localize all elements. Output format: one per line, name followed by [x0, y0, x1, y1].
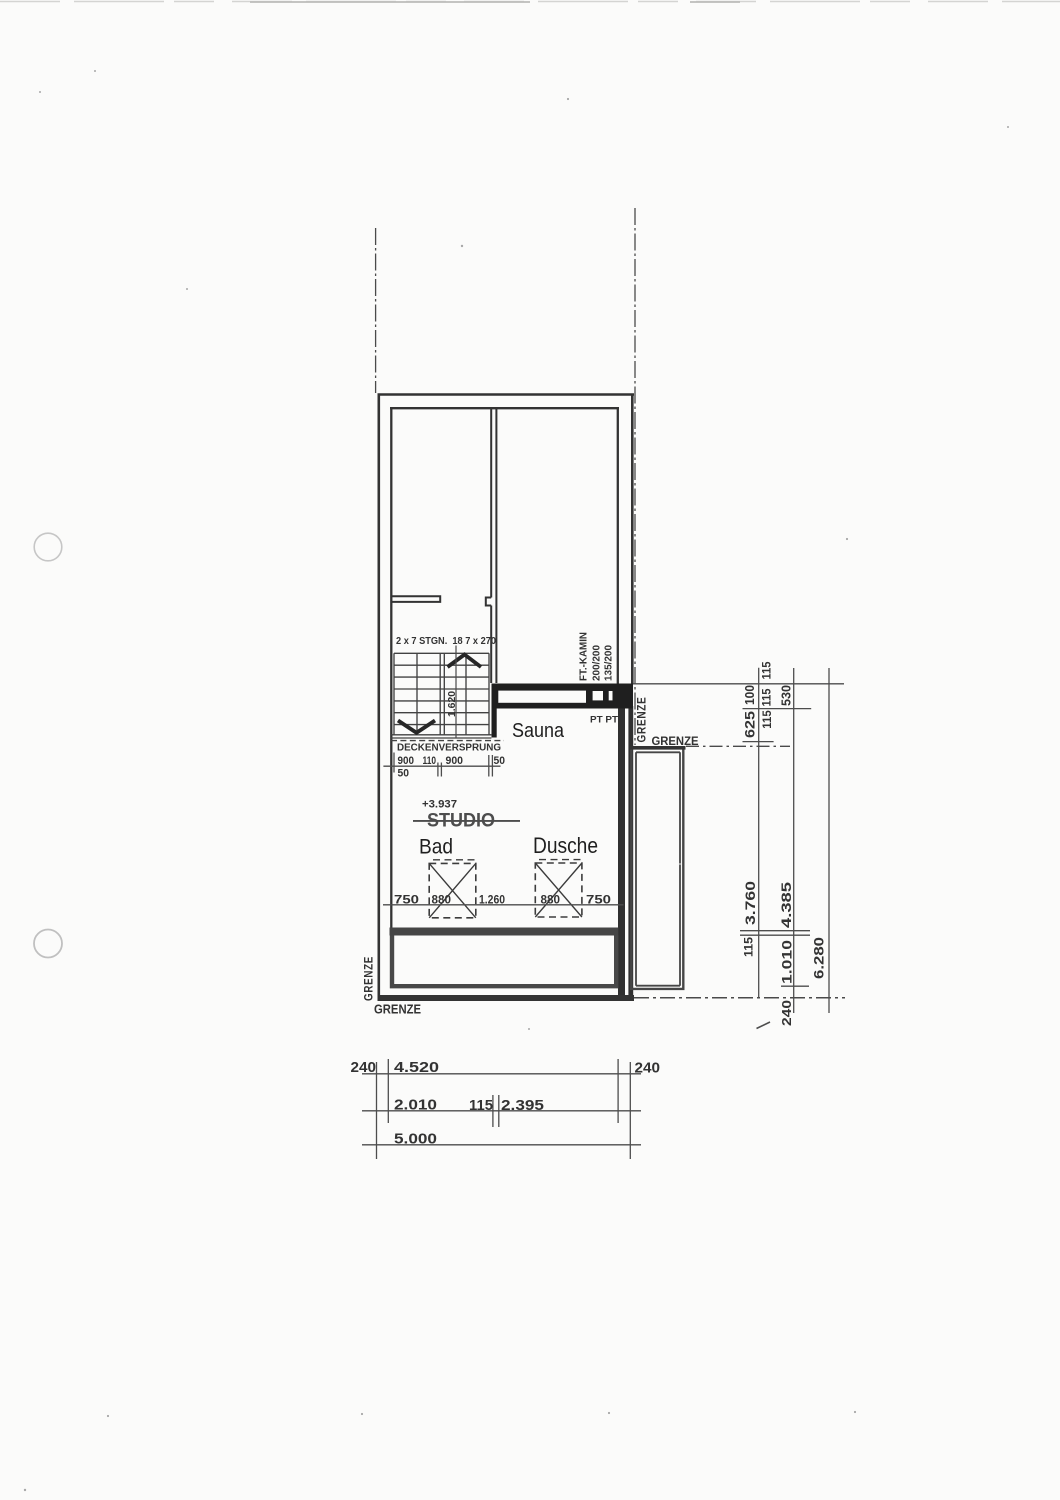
svg-text:530: 530: [780, 685, 794, 706]
svg-text:2.010: 2.010: [394, 1096, 437, 1113]
svg-text:1.260: 1.260: [479, 893, 505, 907]
svg-text:115: 115: [742, 937, 756, 957]
svg-text:880: 880: [541, 893, 561, 907]
svg-text:115: 115: [760, 688, 774, 706]
svg-text:240: 240: [351, 1059, 377, 1076]
svg-text:750: 750: [394, 893, 419, 907]
svg-text:625: 625: [743, 710, 758, 738]
svg-text:50: 50: [494, 755, 506, 767]
svg-text:PT PT: PT PT: [590, 715, 618, 726]
svg-text:Sauna: Sauna: [512, 720, 565, 742]
svg-text:240: 240: [635, 1060, 661, 1077]
svg-text:4.385: 4.385: [778, 882, 794, 928]
svg-text:115: 115: [760, 661, 774, 679]
svg-text:240: 240: [779, 1000, 794, 1026]
svg-text:135/200: 135/200: [604, 645, 615, 681]
svg-text:880: 880: [432, 893, 452, 907]
svg-text:2 x 7 STGN. 18 7 x 270: 2 x 7 STGN. 18 7 x 270: [396, 635, 496, 647]
svg-text:5.000: 5.000: [394, 1130, 437, 1147]
svg-text:110: 110: [423, 755, 437, 767]
svg-text:750: 750: [586, 893, 611, 907]
svg-text:50: 50: [398, 767, 410, 779]
svg-text:GRENZE: GRENZE: [364, 956, 376, 1001]
svg-text:2.395: 2.395: [501, 1097, 544, 1114]
svg-text:DECKENVERSPRUNG: DECKENVERSPRUNG: [397, 743, 501, 754]
svg-text:GRENZE: GRENZE: [637, 697, 649, 743]
svg-text:Dusche: Dusche: [533, 833, 598, 858]
svg-text:+3.937: +3.937: [422, 799, 457, 811]
svg-text:115: 115: [760, 710, 774, 729]
svg-text:1.620: 1.620: [447, 691, 458, 717]
svg-text:4.520: 4.520: [394, 1059, 439, 1076]
svg-text:115: 115: [469, 1097, 493, 1114]
svg-text:200/200: 200/200: [592, 645, 603, 681]
svg-text:6.280: 6.280: [811, 937, 827, 979]
svg-text:1.010: 1.010: [779, 940, 795, 984]
svg-text:900: 900: [398, 755, 415, 767]
svg-text:3.760: 3.760: [742, 881, 758, 925]
svg-text:FT.-KAMIN: FT.-KAMIN: [579, 632, 590, 681]
svg-text:100: 100: [743, 685, 757, 705]
svg-text:900: 900: [446, 755, 464, 767]
svg-text:Bad: Bad: [419, 836, 453, 859]
svg-text:GRENZE: GRENZE: [374, 1003, 421, 1017]
